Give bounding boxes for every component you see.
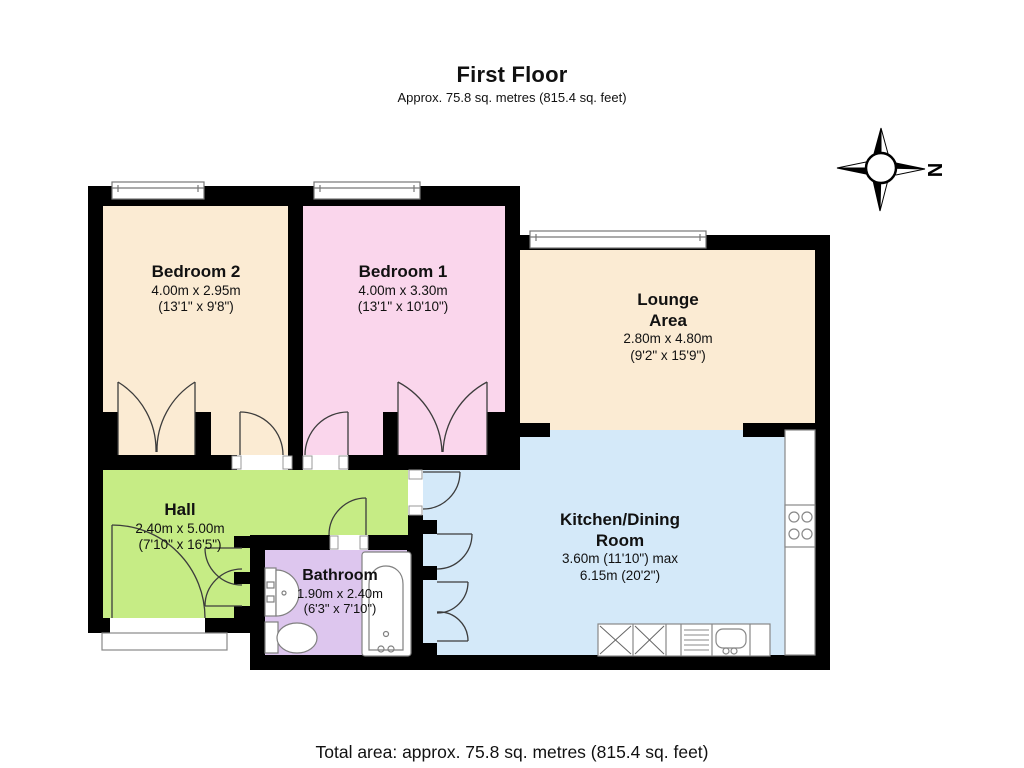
- bedroom1-label: Bedroom 1 4.00m x 3.30m (13'1" x 10'10"): [303, 262, 503, 316]
- entrance-step: [102, 633, 227, 650]
- hall-name: Hall: [105, 500, 255, 521]
- bedroom1-area: [303, 206, 505, 456]
- kitchen-name-line2: Room: [520, 531, 720, 552]
- bedroom1-window: [314, 182, 420, 199]
- bedroom1-name: Bedroom 1: [303, 262, 503, 283]
- lounge-window: [530, 231, 706, 248]
- bedroom2-dims-metric: 4.00m x 2.95m: [106, 283, 286, 299]
- lounge-dims-imperial: (9'2" x 15'9"): [543, 348, 793, 364]
- compass-icon: N: [837, 128, 945, 211]
- bedroom1-dims-imperial: (13'1" x 10'10"): [303, 299, 503, 315]
- floor-plan-page: First Floor Approx. 75.8 sq. metres (815…: [0, 0, 1024, 768]
- hall-dims-imperial: (7'10" x 16'5"): [105, 537, 255, 553]
- total-area-text: Total area: approx. 75.8 sq. metres (815…: [0, 742, 1024, 763]
- hall-dims-metric: 2.40m x 5.00m: [105, 521, 255, 537]
- bathroom-dims-metric: 1.90m x 2.40m: [270, 586, 410, 602]
- bedroom1-dims-metric: 4.00m x 3.30m: [303, 283, 503, 299]
- lounge-label: Lounge Area 2.80m x 4.80m (9'2" x 15'9"): [543, 290, 793, 364]
- kitchen-dims-imperial: 6.15m (20'2"): [520, 568, 720, 584]
- bathroom-name: Bathroom: [270, 566, 410, 586]
- kitchen-bottom-counter: [598, 624, 770, 656]
- hob: [785, 505, 815, 547]
- kitchen-label: Kitchen/Dining Room 3.60m (11'10") max 6…: [520, 510, 720, 584]
- compass-north-label: N: [923, 163, 945, 177]
- toilet: [265, 622, 317, 653]
- lounge-dims-metric: 2.80m x 4.80m: [543, 331, 793, 347]
- lounge-name-line1: Lounge: [543, 290, 793, 311]
- lounge-name-line2: Area: [543, 311, 793, 332]
- bedroom2-name: Bedroom 2: [106, 262, 286, 283]
- bedroom2-label: Bedroom 2 4.00m x 2.95m (13'1" x 9'8"): [106, 262, 286, 316]
- floor-plan-drawing: N: [0, 0, 1024, 768]
- kitchen-dims-metric: 3.60m (11'10") max: [520, 551, 720, 567]
- bedroom2-dims-imperial: (13'1" x 9'8"): [106, 299, 286, 315]
- kitchen-name-line1: Kitchen/Dining: [520, 510, 720, 531]
- hall-label: Hall 2.40m x 5.00m (7'10" x 16'5"): [105, 500, 255, 554]
- kitchen-side-counter: [785, 430, 815, 655]
- bathroom-dims-imperial: (6'3" x 7'10"): [270, 601, 410, 617]
- bathroom-label: Bathroom 1.90m x 2.40m (6'3" x 7'10"): [270, 566, 410, 617]
- bedroom2-window: [112, 182, 204, 199]
